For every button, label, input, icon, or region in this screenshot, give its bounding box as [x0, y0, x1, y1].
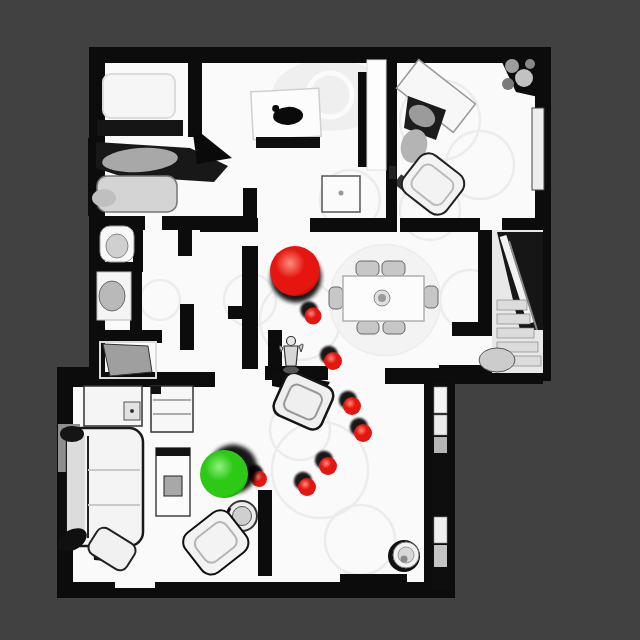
- path-point-marker: [298, 478, 316, 496]
- scene-viewport[interactable]: [0, 0, 640, 640]
- path-point-marker: [324, 352, 342, 370]
- sink-basin: [99, 281, 125, 311]
- path-point-marker: [354, 424, 372, 442]
- console-table: [156, 448, 190, 516]
- apartment-scan-render: [0, 0, 640, 640]
- counter-dark: [97, 120, 183, 136]
- path-point-marker: [305, 308, 322, 325]
- red-sphere-marker: [270, 246, 320, 296]
- doorway-gap: [115, 574, 155, 588]
- landing-bench: [479, 348, 515, 372]
- path-point-marker: [319, 457, 337, 475]
- radiator: [532, 108, 544, 190]
- bathtub-outline: [103, 74, 175, 118]
- path-point-marker: [343, 397, 361, 415]
- green-sphere-marker: [200, 450, 248, 498]
- floor-basin: [388, 540, 420, 572]
- door-panel: [367, 60, 386, 170]
- shower-tray: [103, 344, 152, 376]
